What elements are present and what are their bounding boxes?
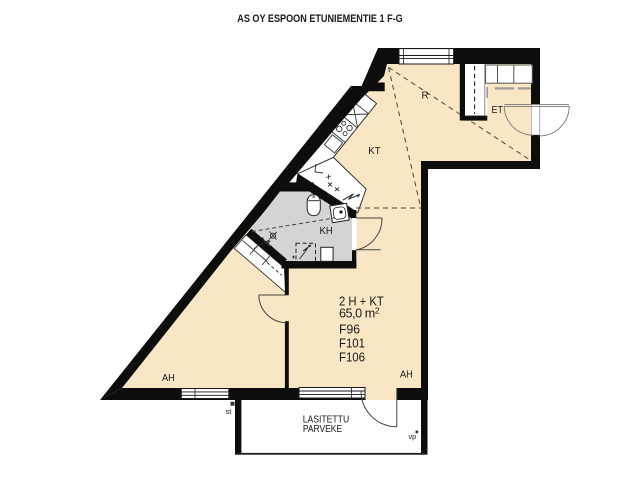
svg-text:PARVEKE: PARVEKE — [303, 424, 343, 435]
svg-text:F106: F106 — [339, 351, 365, 365]
svg-text:KH: KH — [320, 226, 333, 237]
svg-text:R: R — [422, 90, 429, 101]
svg-text:st: st — [226, 407, 233, 416]
svg-text:vp: vp — [409, 432, 417, 441]
svg-text:F96: F96 — [339, 323, 360, 337]
svg-text:AS OY ESPOON ETUNIEMENTIE 1 F-: AS OY ESPOON ETUNIEMENTIE 1 F-G — [237, 13, 403, 25]
svg-text:65,0 m2: 65,0 m2 — [339, 306, 380, 321]
svg-text:ET: ET — [492, 105, 504, 116]
svg-text:F101: F101 — [339, 337, 365, 351]
svg-text:KT: KT — [368, 146, 380, 157]
svg-text:AH: AH — [400, 369, 413, 380]
svg-text:AH: AH — [162, 373, 175, 384]
